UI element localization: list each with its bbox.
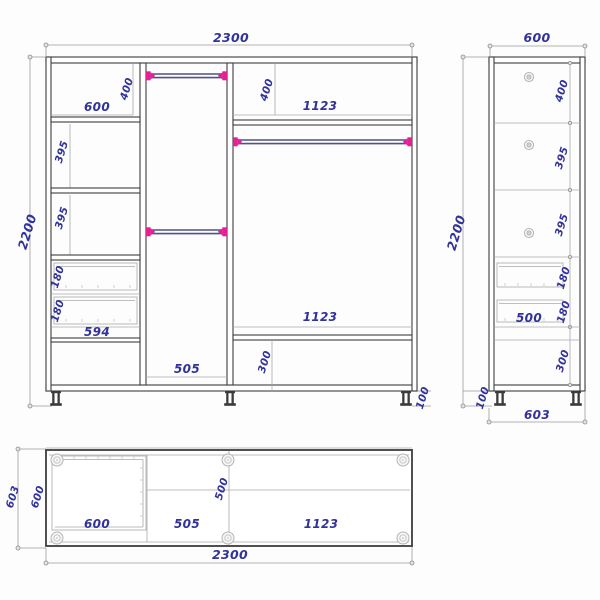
plan-dim-603: 603 <box>4 484 22 509</box>
foot-top-middle <box>222 454 234 466</box>
foot-bottom-left <box>51 532 63 544</box>
leg <box>400 391 412 406</box>
side-dim-300: 300 <box>554 348 572 373</box>
plan-dim-505: 505 <box>174 517 200 531</box>
front-dim-300: 300 <box>256 349 274 374</box>
leg <box>50 391 62 406</box>
front-dim-395-a: 395 <box>53 139 71 164</box>
side-view: 600 2200 400 395 395 180 180 500 300 100… <box>444 30 587 424</box>
side-dim-395-a: 395 <box>553 145 571 170</box>
front-dim-total-width: 2300 <box>213 30 249 45</box>
plan-dim-600: 600 <box>84 517 110 531</box>
side-drawer-1 <box>497 263 563 287</box>
foot-bottom-right <box>397 532 409 544</box>
hanger-rod-right <box>233 137 412 146</box>
side-dim-400: 400 <box>553 78 571 104</box>
side-dim-500: 500 <box>516 311 542 325</box>
plan-dim-2300: 2300 <box>212 547 248 562</box>
plan-dim-1123: 1123 <box>304 517 339 531</box>
front-dim-594: 594 <box>84 325 110 339</box>
hanger-rod-top <box>146 71 227 80</box>
rod-cap-right <box>218 71 227 80</box>
cam-fitting <box>524 72 533 81</box>
rod-cap-right <box>218 227 227 236</box>
hanger-rod-middle <box>146 227 227 236</box>
cam-fitting <box>524 140 533 149</box>
foot-top-right <box>397 454 409 466</box>
drawing-canvas: 2300 2200 600 400 395 395 180 180 594 50… <box>0 0 600 600</box>
side-dim-100: 100 <box>474 385 492 410</box>
rod-cap-left <box>146 71 155 80</box>
side-dim-600: 600 <box>524 30 551 45</box>
front-dim-400-right: 400 <box>258 77 276 103</box>
front-dim-1123-bottom: 1123 <box>303 310 338 324</box>
rod-cap-left <box>233 137 242 146</box>
front-dim-600: 600 <box>84 100 110 114</box>
front-legs <box>50 391 412 406</box>
plan-dim-600-depth: 600 <box>29 484 47 509</box>
front-drawer-2 <box>54 297 137 324</box>
front-dim-180-b: 180 <box>49 298 67 323</box>
side-dimension-lines <box>461 44 587 424</box>
front-middle-column <box>146 71 227 377</box>
leg <box>224 391 236 406</box>
side-legs <box>494 391 582 406</box>
front-view: 2300 2200 600 400 395 395 180 180 594 50… <box>15 30 432 411</box>
foot-bottom-middle <box>222 532 234 544</box>
plan-view: 603 600 600 505 1123 500 2300 <box>4 447 414 565</box>
leg <box>494 391 506 406</box>
front-dim-505: 505 <box>174 362 200 376</box>
side-dim-603: 603 <box>524 408 550 422</box>
front-dim-395-b: 395 <box>53 205 71 230</box>
wardrobe-technical-drawing: 2300 2200 600 400 395 395 180 180 594 50… <box>0 0 600 600</box>
front-dim-total-height: 2200 <box>15 212 40 251</box>
rod-cap-right <box>403 137 412 146</box>
cam-fitting <box>524 228 533 237</box>
leg <box>570 391 582 406</box>
side-carcass <box>489 57 585 391</box>
front-drawer-1 <box>54 263 137 290</box>
front-dim-180-a: 180 <box>49 264 67 289</box>
side-dim-395-b: 395 <box>553 212 571 237</box>
side-dim-2200: 2200 <box>444 213 469 252</box>
foot-top-left <box>51 454 63 466</box>
rod-cap-left <box>146 227 155 236</box>
front-dim-1123-top: 1123 <box>303 99 338 113</box>
